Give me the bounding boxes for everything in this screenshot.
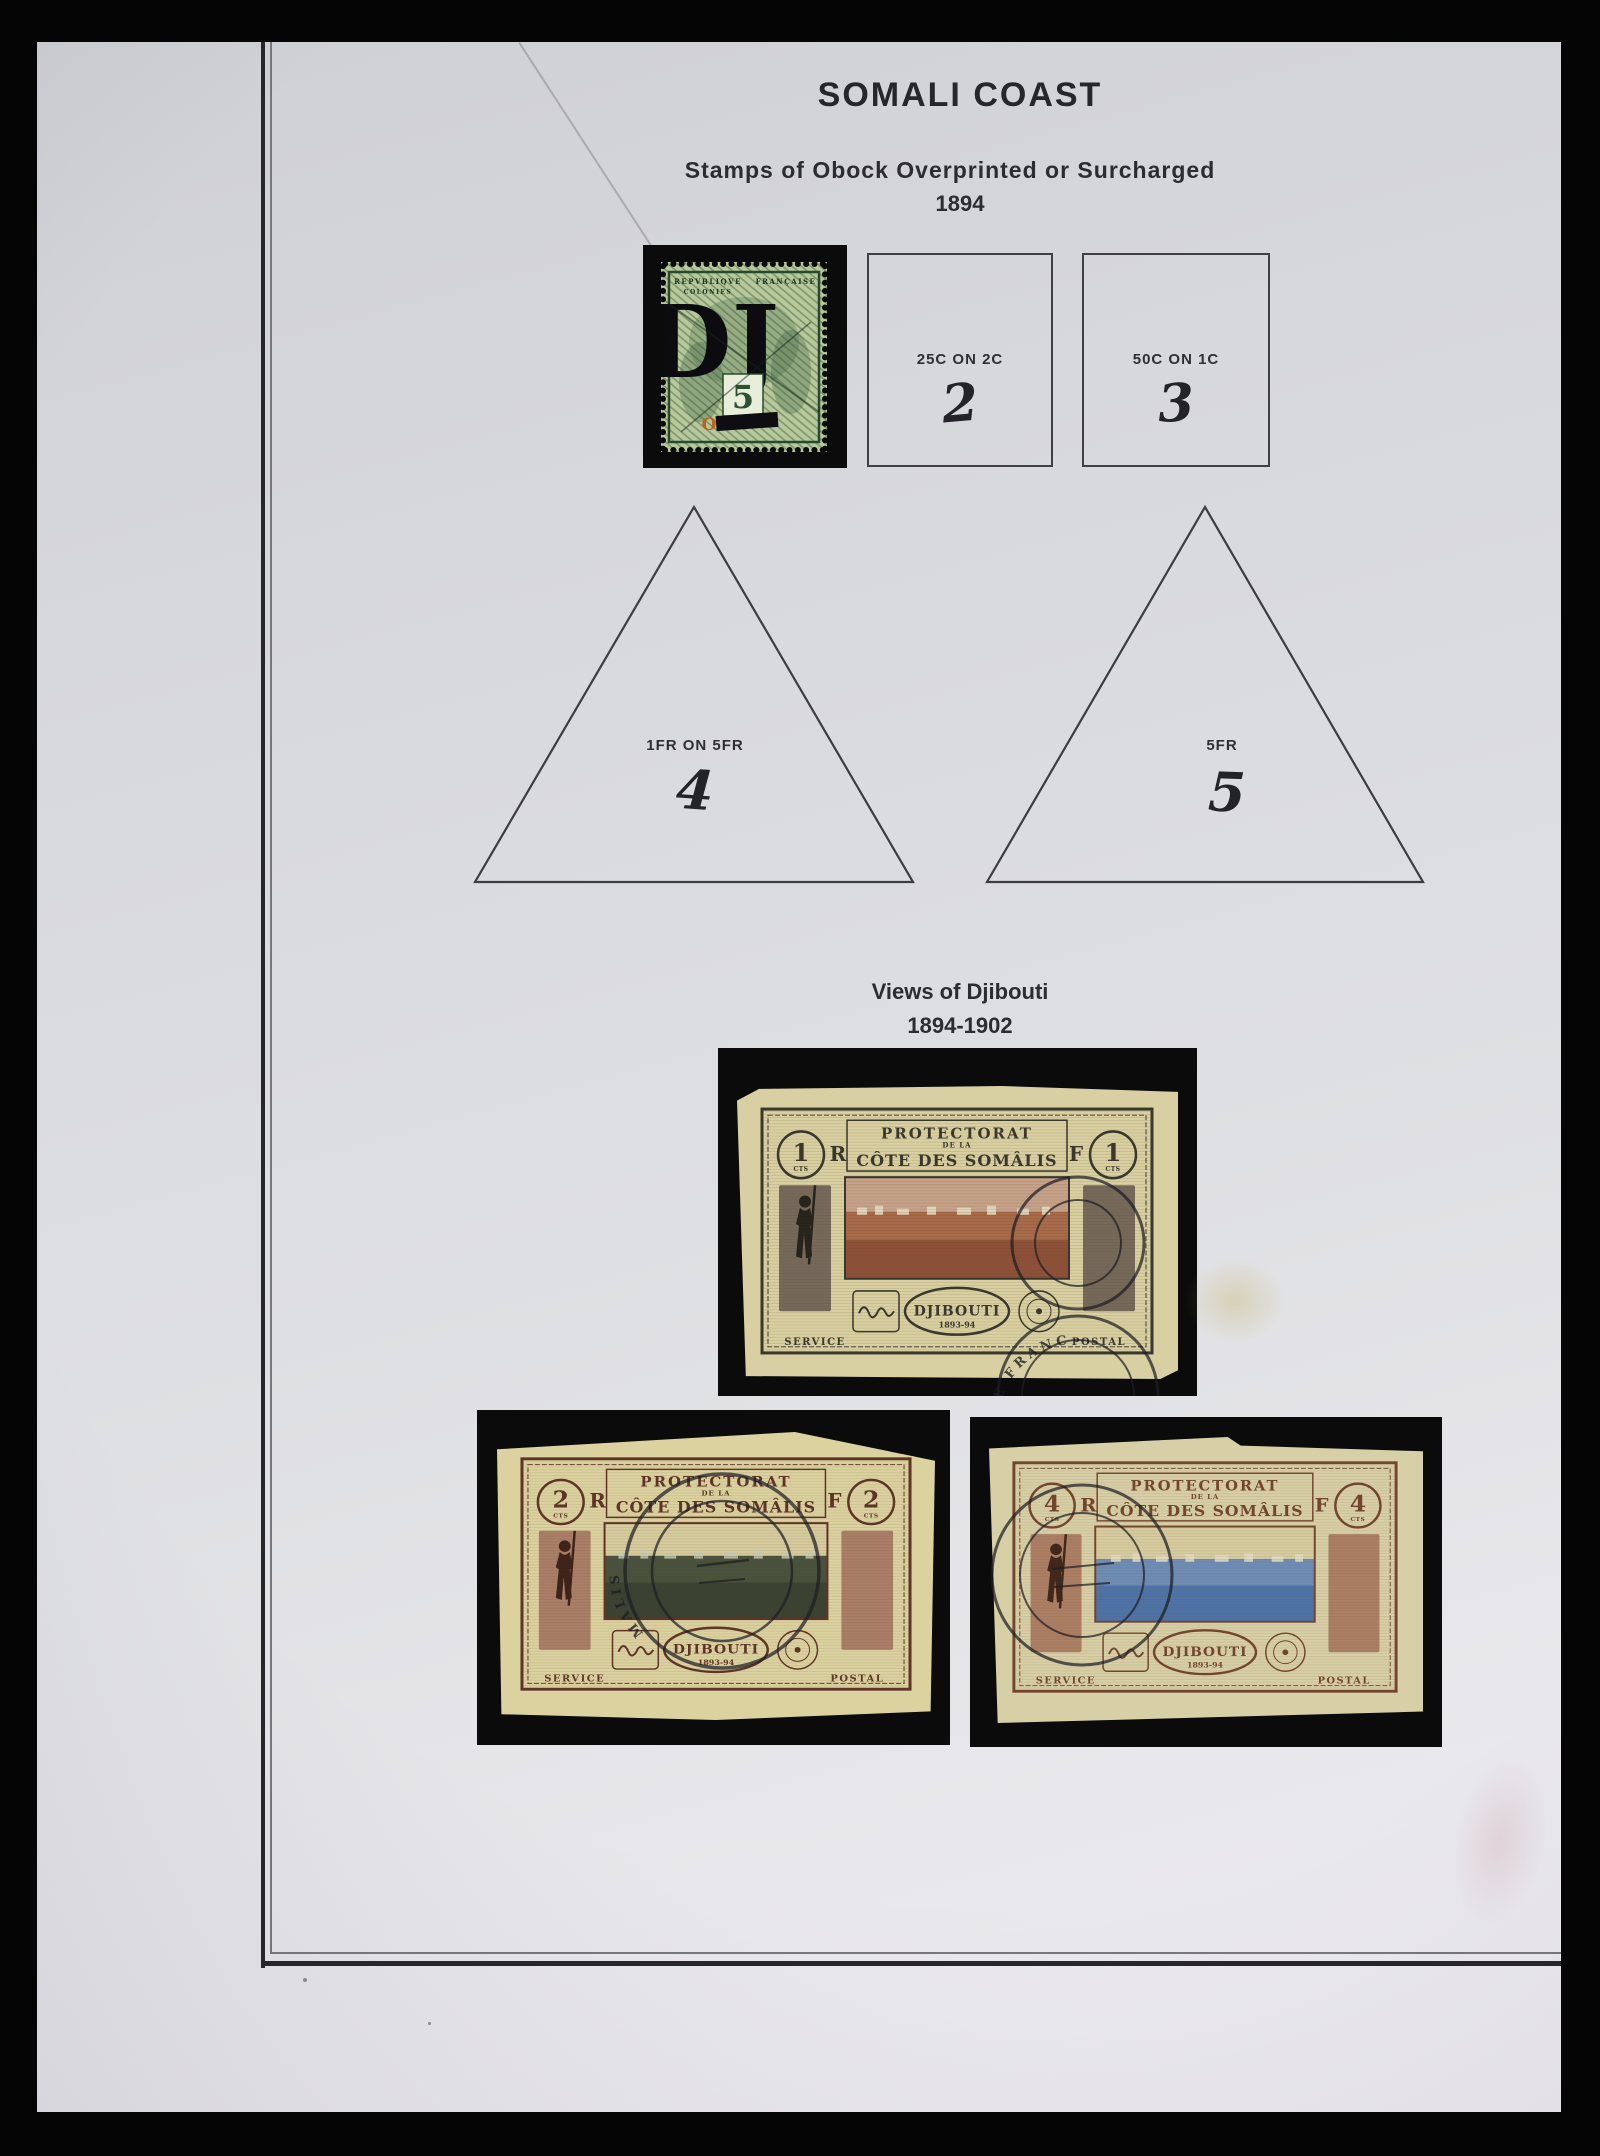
page-border-vertical-outer — [261, 42, 265, 1968]
stamp-mount-4c: 4 CTS 4 CTS PROTECTORAT DE LA CÔTE DES S… — [970, 1417, 1442, 1747]
postmark-text: TE FRANC — [948, 1300, 1072, 1396]
postmark-cds-1c-lower: TE FRANC — [948, 1300, 1193, 1396]
page-title: SOMALI COAST — [660, 76, 1260, 115]
postmark-cds-2c: ES SOMALIS — [587, 1438, 857, 1708]
placeholder-catalog-number: 5 — [1171, 758, 1283, 826]
album-photo: SOMALI COAST Stamps of Obock Overprinted… — [0, 0, 1600, 2156]
section-views-years: 1894-1902 — [660, 1013, 1260, 1039]
placeholder-box-50c-on-1c: 50C ON 1C 3 — [1082, 253, 1270, 467]
placeholder-box-25c-on-2c: 25C ON 2C 2 — [867, 253, 1053, 467]
page-border-bottom-inner — [272, 1952, 1561, 1954]
placeholder-catalog-number: 2 — [867, 365, 1054, 442]
placeholder-label: 1FR ON 5FR — [595, 737, 795, 754]
postmark-cds-1c — [968, 1143, 1198, 1313]
stamp-dj-obock-overprint: REPVBLIQVE FRANÇAISE COLONIES DJ 5 O — [661, 262, 827, 452]
placeholder-label: 25C ON 2C — [869, 351, 1051, 368]
section-obock-year: 1894 — [660, 191, 1260, 217]
stamp-mount-dj: REPVBLIQVE FRANÇAISE COLONIES DJ 5 O — [643, 245, 847, 468]
stamp-dj-value: 5 — [732, 378, 754, 416]
placeholder-label: 50C ON 1C — [1084, 351, 1268, 368]
page-stain — [1185, 1258, 1285, 1344]
stamp-mount-2c: 2 CTS 2 CTS PROTECTORAT DE LA CÔTE DES S… — [477, 1410, 950, 1745]
section-obock-heading: Stamps of Obock Overprinted or Surcharge… — [650, 157, 1250, 184]
stamp-dj-obock-letter: O — [702, 415, 717, 435]
postmark-cds-4c — [982, 1457, 1222, 1707]
placeholder-catalog-number: 3 — [1083, 368, 1270, 439]
page-border-vertical-inner — [270, 42, 272, 1954]
placeholder-label: 5FR — [1122, 737, 1322, 754]
placeholder-catalog-number: 4 — [638, 754, 752, 826]
paper-speck — [303, 1978, 307, 1982]
postmark-text: ES SOMALIS — [587, 1438, 647, 1640]
stamp-mount-1c: 1 CTS 1 CTS PROTECTORAT DE LA CÔTE DES S… — [718, 1048, 1197, 1396]
section-views-heading: Views of Djibouti — [660, 979, 1260, 1005]
paper-speck — [428, 2022, 431, 2025]
page-border-bottom-outer — [261, 1961, 1561, 1966]
